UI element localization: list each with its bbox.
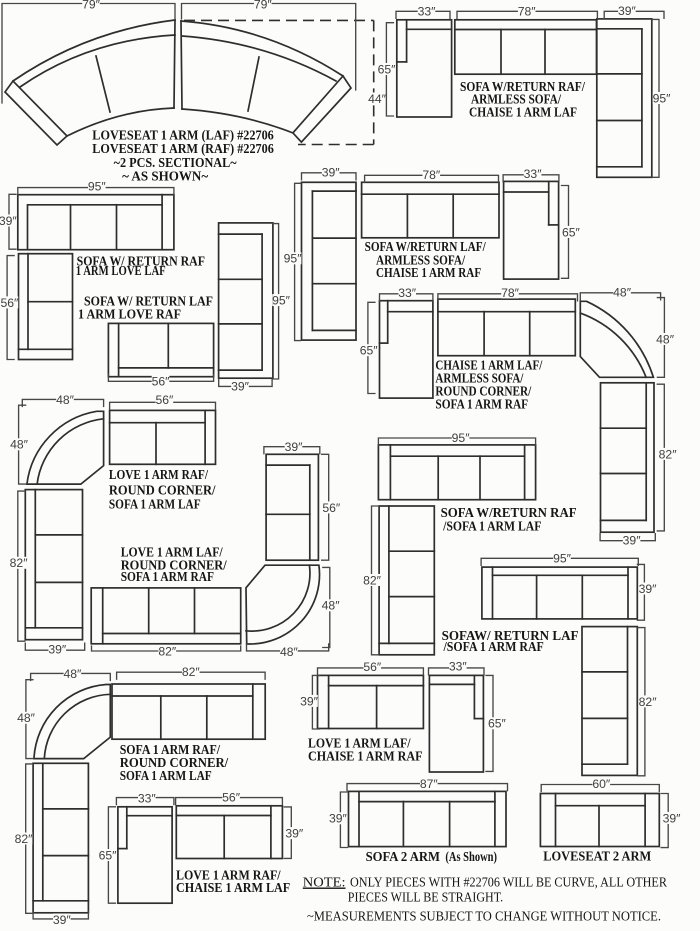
- svg-text:65″: 65″: [378, 62, 397, 76]
- svg-text:1 ARM LOVE LAF: 1 ARM LOVE LAF: [76, 263, 166, 278]
- svg-text:(As Shown): (As Shown): [445, 849, 497, 864]
- svg-text:48″: 48″: [322, 599, 341, 613]
- svg-text:48″: 48″: [17, 711, 36, 725]
- svg-text:39″: 39″: [48, 642, 67, 656]
- svg-text:~MEASUREMENTS SUBJECT TO CHANG: ~MEASUREMENTS SUBJECT TO CHANGE WITHOUT …: [307, 910, 661, 925]
- svg-text:33″: 33″: [418, 5, 437, 19]
- svg-text:56″: 56″: [0, 296, 19, 310]
- svg-text:65″: 65″: [99, 848, 118, 862]
- svg-text:ONLY PIECES WITH #22706 WILL B: ONLY PIECES WITH #22706 WILL BE CURVE, A…: [350, 876, 668, 891]
- svg-text:CHAISE 1 ARM LAF: CHAISE 1 ARM LAF: [469, 105, 577, 120]
- svg-text:SOFA 1 ARM RAF: SOFA 1 ARM RAF: [121, 569, 214, 584]
- svg-text:39″: 39″: [231, 380, 250, 394]
- svg-text:56″: 56″: [152, 375, 171, 389]
- svg-text:SOFA 1 ARM LAF: SOFA 1 ARM LAF: [109, 497, 201, 512]
- svg-text:82″: 82″: [182, 665, 201, 679]
- svg-text:39″: 39″: [0, 214, 17, 228]
- svg-text:82″: 82″: [15, 832, 34, 846]
- svg-text:56″: 56″: [155, 393, 174, 407]
- svg-text:CHAISE 1 ARM RAF: CHAISE 1 ARM RAF: [376, 265, 481, 280]
- svg-text:44″: 44″: [368, 92, 387, 106]
- svg-text:48″: 48″: [280, 645, 299, 659]
- svg-text:LOVESEAT 1 ARM (RAF) #22706: LOVESEAT 1 ARM (RAF) #22706: [92, 141, 274, 156]
- svg-text:39″: 39″: [53, 913, 72, 926]
- svg-text:95″: 95″: [284, 252, 303, 266]
- svg-text:33″: 33″: [138, 791, 157, 805]
- svg-text:82″: 82″: [363, 573, 382, 587]
- svg-text:39″: 39″: [663, 811, 682, 825]
- svg-text:PIECES WILL BE STRAIGHT.: PIECES WILL BE STRAIGHT.: [348, 891, 503, 906]
- svg-text:~ AS SHOWN~: ~ AS SHOWN~: [122, 169, 208, 184]
- svg-text:33″: 33″: [398, 286, 417, 300]
- svg-text:79″: 79″: [254, 0, 273, 12]
- svg-text:CHAISE 1 ARM RAF: CHAISE 1 ARM RAF: [308, 748, 423, 763]
- svg-text:48″: 48″: [613, 286, 632, 300]
- svg-text:56″: 56″: [363, 660, 382, 674]
- svg-text:33″: 33″: [449, 660, 468, 674]
- svg-text:65″: 65″: [488, 717, 507, 731]
- svg-text:95″: 95″: [272, 294, 291, 308]
- svg-text:78″: 78″: [422, 168, 441, 182]
- svg-text:82″: 82″: [659, 447, 678, 461]
- svg-text:LOVESEAT 2 ARM: LOVESEAT 2 ARM: [543, 848, 652, 863]
- svg-text:48″: 48″: [10, 438, 29, 452]
- svg-text:48″: 48″: [63, 667, 82, 681]
- svg-text:39″: 39″: [300, 694, 319, 708]
- svg-text:87″: 87″: [420, 777, 439, 791]
- svg-text:1 ARM LOVE RAF: 1 ARM LOVE RAF: [78, 307, 181, 322]
- svg-text:48″: 48″: [656, 332, 675, 346]
- svg-text:39″: 39″: [329, 812, 348, 826]
- svg-text:39″: 39″: [322, 166, 341, 180]
- svg-text:33″: 33″: [524, 167, 543, 181]
- svg-text:95″: 95″: [88, 180, 107, 194]
- svg-text:82″: 82″: [639, 695, 658, 709]
- svg-text:95″: 95″: [553, 551, 572, 565]
- svg-text:79″: 79″: [82, 0, 101, 12]
- svg-text:SOFA 1 ARM RAF: SOFA 1 ARM RAF: [435, 397, 528, 412]
- svg-text:48″: 48″: [56, 393, 75, 407]
- svg-text:39″: 39″: [285, 440, 304, 454]
- svg-text:39″: 39″: [623, 534, 642, 548]
- svg-text:82″: 82″: [10, 556, 29, 570]
- svg-text:65″: 65″: [360, 344, 379, 358]
- svg-text:CHAISE 1 ARM LAF: CHAISE 1 ARM LAF: [176, 880, 290, 895]
- svg-text:SOFA 2 ARM: SOFA 2 ARM: [366, 849, 441, 864]
- svg-text:/SOFA 1 ARM LAF: /SOFA 1 ARM LAF: [442, 518, 541, 533]
- svg-text:LOVE 1 ARM RAF/: LOVE 1 ARM RAF/: [109, 467, 208, 482]
- svg-text:78″: 78″: [518, 5, 537, 19]
- svg-text:56″: 56″: [222, 791, 241, 805]
- svg-text:60″: 60″: [592, 777, 611, 791]
- svg-text:SOFA 1 ARM LAF: SOFA 1 ARM LAF: [120, 768, 212, 783]
- svg-text:39″: 39″: [639, 582, 658, 596]
- svg-text:95″: 95″: [653, 91, 672, 105]
- svg-text:ROUND CORNER/: ROUND CORNER/: [109, 482, 216, 497]
- svg-text:39″: 39″: [285, 827, 304, 841]
- svg-text:65″: 65″: [562, 225, 581, 239]
- svg-text:39″: 39″: [618, 4, 637, 18]
- svg-text:95″: 95″: [452, 431, 471, 445]
- svg-text:82″: 82″: [158, 644, 177, 658]
- svg-text:56″: 56″: [322, 501, 341, 515]
- svg-text:/SOFA 1 ARM RAF: /SOFA 1 ARM RAF: [443, 639, 544, 654]
- svg-text:78″: 78″: [501, 286, 520, 300]
- svg-text:NOTE:: NOTE:: [303, 876, 346, 891]
